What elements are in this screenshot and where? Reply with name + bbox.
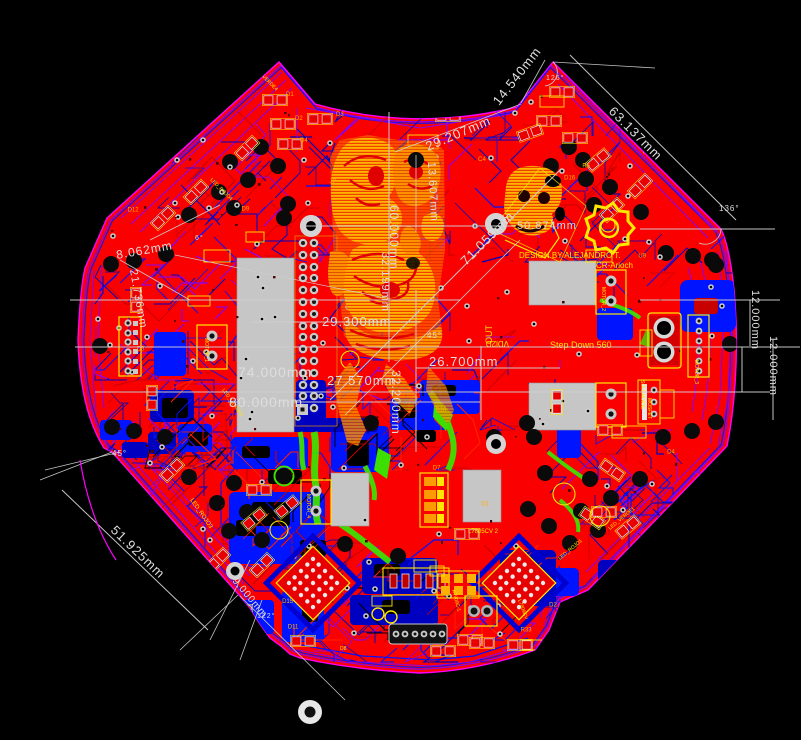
svg-text:50.874mm: 50.874mm — [517, 220, 577, 232]
svg-text:D3: D3 — [336, 112, 344, 118]
svg-text:26.700mm: 26.700mm — [429, 354, 498, 369]
svg-text:MOTOR_2: MOTOR_2 — [600, 287, 606, 311]
svg-text:6°: 6° — [195, 234, 204, 242]
svg-text:U9: U9 — [638, 253, 646, 259]
svg-text:122°: 122° — [257, 612, 275, 620]
svg-text:D4: D4 — [300, 138, 308, 144]
svg-text:DESIGN BY ALEJANDRO T.: DESIGN BY ALEJANDRO T. — [519, 251, 621, 260]
svg-text:D8: D8 — [340, 646, 347, 652]
svg-text:L7805CV 2: L7805CV 2 — [468, 529, 499, 535]
svg-text:12.000mm: 12.000mm — [749, 290, 761, 350]
svg-text:D4: D4 — [667, 449, 675, 455]
svg-text:D15: D15 — [282, 599, 294, 605]
svg-text:MOTOR_4: MOTOR_4 — [305, 494, 311, 518]
svg-text:D2: D2 — [549, 603, 557, 609]
svg-text:80.000mm: 80.000mm — [229, 394, 303, 410]
svg-text:D3: D3 — [137, 347, 145, 353]
svg-text:CR-Arioch: CR-Arioch — [596, 261, 633, 270]
svg-text:D11: D11 — [288, 624, 299, 630]
svg-text:D2: D2 — [295, 116, 303, 122]
svg-text:45°: 45° — [112, 449, 127, 458]
svg-text:136°: 136° — [719, 204, 740, 213]
svg-text:29.300mm: 29.300mm — [322, 314, 391, 329]
svg-text:27.570mm: 27.570mm — [327, 373, 396, 388]
svg-text:MOTOR_3: MOTOR_3 — [693, 360, 699, 384]
svg-text:D10: D10 — [435, 407, 447, 413]
svg-text:45°: 45° — [427, 331, 442, 340]
svg-text:74.000mm: 74.000mm — [238, 364, 312, 380]
svg-text:MOTOR_1: MOTOR_1 — [203, 338, 209, 362]
svg-text:12.000mm: 12.000mm — [767, 336, 779, 396]
svg-text:D9: D9 — [241, 207, 249, 213]
svg-text:D7: D7 — [433, 466, 441, 472]
svg-text:JP: JP — [329, 179, 336, 185]
svg-text:Step Down 560: Step Down 560 — [550, 340, 612, 350]
svg-text:D1: D1 — [286, 92, 294, 98]
svg-text:32.200mm: 32.200mm — [389, 370, 403, 435]
svg-text:R6: R6 — [582, 164, 590, 170]
svg-text:126°: 126° — [546, 74, 564, 82]
svg-text:D16: D16 — [564, 175, 576, 181]
svg-text:32.199mm: 32.199mm — [379, 252, 391, 312]
svg-text:D1: D1 — [481, 501, 489, 507]
svg-text:C4: C4 — [478, 157, 486, 163]
svg-text:MOSFET: MOSFET — [646, 398, 652, 419]
svg-text:SOLENOIDE: SOLENOIDE — [639, 380, 645, 410]
svg-text:D12: D12 — [128, 207, 140, 213]
svg-text:R33: R33 — [521, 627, 533, 633]
